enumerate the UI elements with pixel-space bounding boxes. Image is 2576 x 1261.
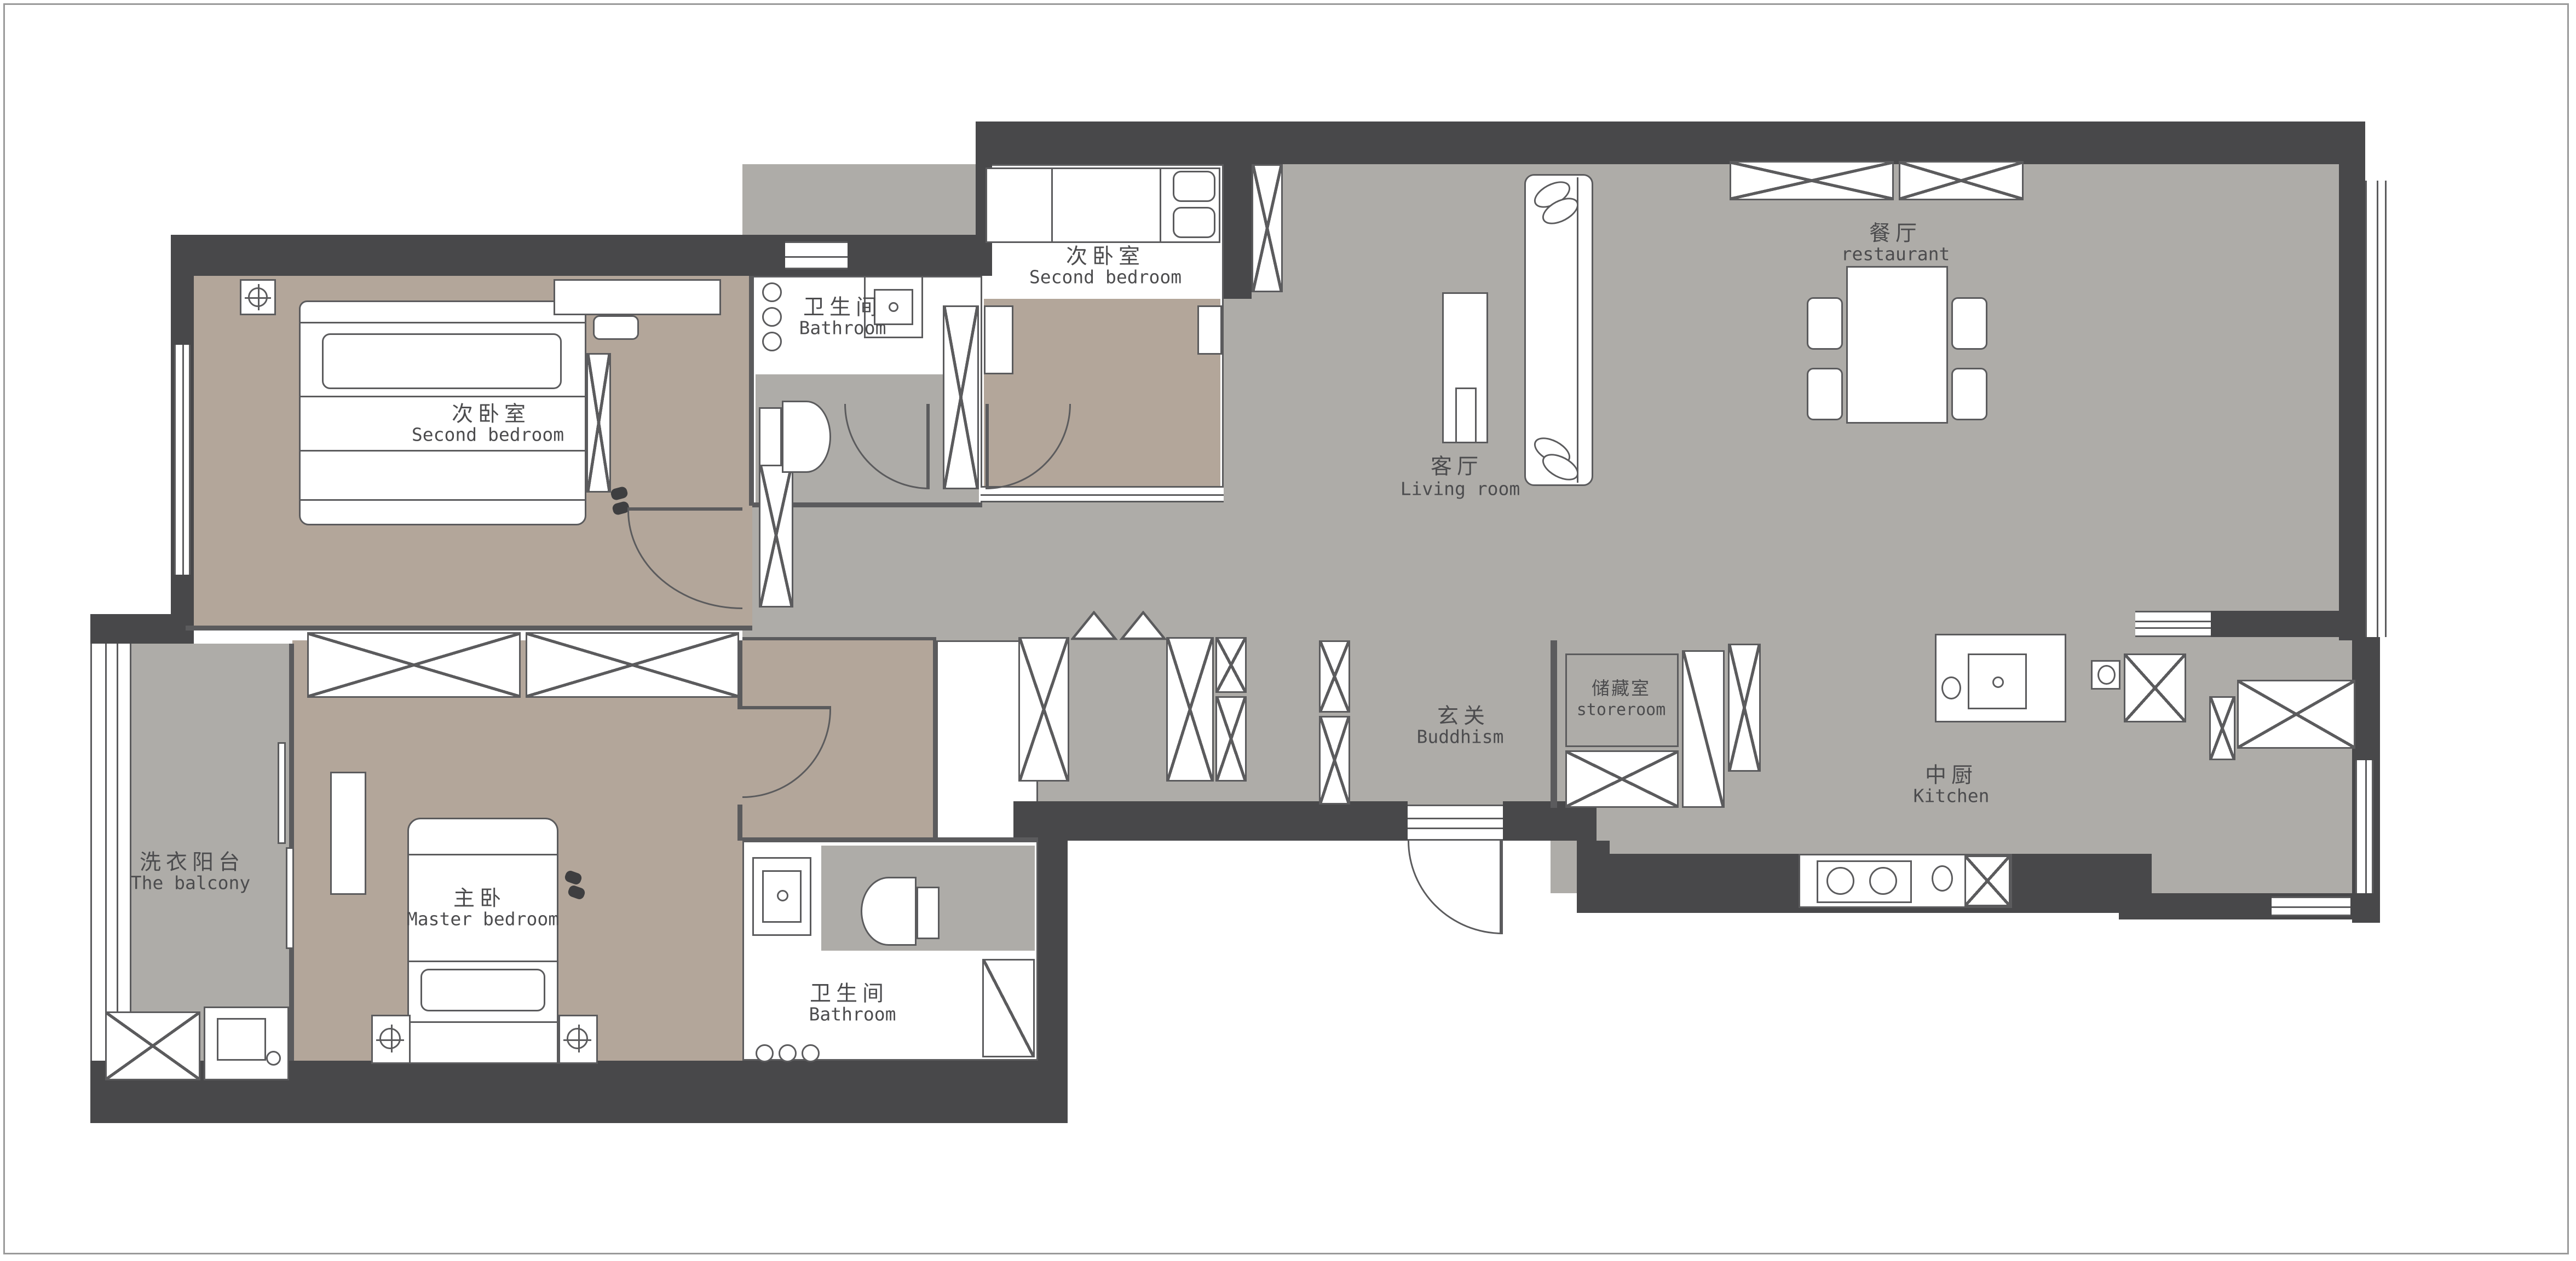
wardrobe xyxy=(526,632,739,698)
bed-headboard xyxy=(299,300,586,323)
room-label-balcony-cn: 洗衣阳台 xyxy=(140,845,245,876)
desk-chair xyxy=(593,315,639,340)
wardrobe-bathroom xyxy=(943,305,979,489)
bed-line xyxy=(301,499,585,501)
hall-wardrobe xyxy=(1018,637,1069,782)
room-label-hallway-en: Buddhism xyxy=(1417,727,1504,748)
wardrobe-corridor xyxy=(759,463,793,608)
wall-entry-south-west xyxy=(1013,801,1408,841)
dining-chair xyxy=(1807,368,1843,420)
burner-icon xyxy=(1869,867,1897,895)
room-label-master-cn: 主卧 xyxy=(453,881,506,912)
appliance-icon xyxy=(1941,676,1961,699)
shower-control-icon xyxy=(779,1044,797,1062)
room-label-bathroom-top-en: Bathroom xyxy=(799,318,886,339)
kitchen-pass-band xyxy=(2135,611,2211,637)
window-balcony-west xyxy=(90,644,131,1061)
lamp-icon xyxy=(379,1028,401,1049)
wall-bedroom-top-east xyxy=(1224,164,1252,299)
bed-line xyxy=(1051,169,1053,241)
bed-pillow xyxy=(1173,207,1215,238)
hook-icon xyxy=(762,332,782,351)
hall-cabinet xyxy=(1215,696,1247,782)
room-label-living-room-en: Living room xyxy=(1401,479,1520,500)
wall-top-right xyxy=(976,122,2349,164)
drain-icon xyxy=(266,1051,281,1066)
wall-storeroom-west xyxy=(1551,640,1557,808)
storeroom-cabinet xyxy=(1565,750,1679,808)
lamp-icon xyxy=(248,287,268,307)
bed-line xyxy=(409,961,557,963)
folding-door-icon xyxy=(1071,611,1166,640)
desk xyxy=(554,279,721,315)
nightstand xyxy=(1197,305,1222,355)
kitchen-cabinet xyxy=(1964,855,2010,906)
dresser xyxy=(330,772,366,895)
hall-wardrobe xyxy=(1166,637,1214,782)
room-label-hallway-cn: 玄关 xyxy=(1437,699,1490,730)
wall-kitchen-strip-top xyxy=(2211,611,2360,637)
shower-area xyxy=(982,959,1035,1057)
wall-corridor-vestibule xyxy=(933,640,938,841)
wall-entry-corner xyxy=(1577,841,1610,913)
fridge xyxy=(2237,680,2355,749)
floor-plan-canvas: 次卧室 Second bedroom 卫生间 Bathroom 次卧室 Seco… xyxy=(0,0,2575,1261)
faucet-icon xyxy=(1992,676,2004,688)
room-label-bathroom-bottom-en: Bathroom xyxy=(809,1004,896,1026)
shower-control-icon xyxy=(756,1044,774,1062)
wall-bedroom-left-south xyxy=(186,626,752,630)
window-bedroom-left xyxy=(174,345,191,575)
tall-cabinet xyxy=(1728,644,1761,772)
dining-chair xyxy=(1951,368,1987,420)
room-label-master-en: Master bedroom xyxy=(407,909,559,930)
lamp-icon xyxy=(567,1028,588,1049)
wall-balcony-corner xyxy=(90,614,194,644)
room-label-bathroom-bottom-cn: 卫生间 xyxy=(810,976,889,1008)
wall-top-left xyxy=(181,235,992,276)
room-label-kitchen-cn: 中厨 xyxy=(1925,758,1978,789)
room-label-kitchen-en: Kitchen xyxy=(1913,786,1989,807)
tall-cabinet xyxy=(1682,650,1725,808)
hall-cabinet xyxy=(1319,716,1350,805)
toilet-bowl xyxy=(782,401,831,473)
toilet-tank xyxy=(917,887,940,939)
bed-line xyxy=(1160,169,1162,241)
dining-chair xyxy=(1807,297,1843,350)
bed-pillow xyxy=(322,333,562,389)
room-label-storeroom-cn: 储藏室 xyxy=(1592,675,1651,701)
sofa-seat-line xyxy=(1577,177,1579,483)
bed-pillow xyxy=(420,969,545,1011)
dining-cabinet xyxy=(1899,161,2024,200)
kitchen-cabinet-column xyxy=(2209,696,2235,760)
room-label-dining-cn: 餐厅 xyxy=(1869,216,1922,247)
door-leaf xyxy=(986,404,989,489)
hook-icon xyxy=(762,282,782,302)
bed-pillow xyxy=(1173,171,1215,202)
toilet-bowl xyxy=(861,877,917,946)
room-label-second-bedroom-left-en: Second bedroom xyxy=(412,425,564,446)
room-label-second-bedroom-left-cn: 次卧室 xyxy=(452,397,531,428)
toilet-tank xyxy=(759,407,782,466)
bed-line xyxy=(301,450,585,452)
burner-icon xyxy=(1826,867,1854,895)
bed-line xyxy=(409,854,557,856)
appliance-icon xyxy=(1932,865,1953,892)
shower-control-icon xyxy=(802,1044,820,1062)
wardrobe xyxy=(307,632,521,698)
room-label-living-room-cn: 客厅 xyxy=(1431,449,1483,481)
tv-icon xyxy=(1455,387,1477,443)
door-leaf xyxy=(742,706,831,709)
wall-bathroom-west xyxy=(749,276,754,506)
dining-cabinet xyxy=(1730,161,1894,200)
entry-door-threshold xyxy=(1408,805,1503,841)
shelf-column xyxy=(586,353,611,493)
washing-machine xyxy=(105,1011,200,1080)
laundry-sink-basin xyxy=(217,1018,266,1061)
door-leaf xyxy=(926,404,930,489)
door-leaf xyxy=(627,507,742,511)
kitchen-cabinet xyxy=(2124,653,2186,722)
window-bathroom-top xyxy=(785,241,848,269)
sliding-door-panel xyxy=(278,742,286,844)
faucet-icon xyxy=(777,890,788,901)
hall-cabinet xyxy=(1215,637,1247,693)
room-label-dining-en: restaurant xyxy=(1841,244,1950,265)
window-dining-east xyxy=(2365,181,2387,637)
appliance-icon xyxy=(2097,665,2116,685)
window-kitchen-east xyxy=(2355,760,2373,893)
threshold-corridor xyxy=(742,637,936,640)
wall-bathroom-bottom-east xyxy=(1038,821,1068,1061)
faucet-icon xyxy=(889,302,898,312)
bed-line xyxy=(301,396,585,398)
bed-line xyxy=(409,1021,557,1023)
threshold-bathroom-bottom xyxy=(742,837,1038,841)
room-label-second-bedroom-top-en: Second bedroom xyxy=(1029,267,1182,288)
threshold-second-bedroom-top xyxy=(981,486,1224,502)
room-label-bathroom-top-cn: 卫生间 xyxy=(803,290,882,321)
cabinet-living-west xyxy=(1252,164,1283,292)
room-label-storeroom-en: storeroom xyxy=(1577,702,1666,720)
sliding-door-panel xyxy=(286,847,294,949)
dining-chair xyxy=(1951,297,1987,350)
hook-icon xyxy=(762,307,782,327)
wall-corridor-west-b xyxy=(737,805,742,841)
desk xyxy=(984,305,1013,374)
entry-door-leaf xyxy=(1500,841,1503,934)
room-label-second-bedroom-top-cn: 次卧室 xyxy=(1066,239,1145,270)
room-label-balcony-en: The balcony xyxy=(131,873,251,894)
window-kitchen-south xyxy=(2272,896,2350,916)
dining-table xyxy=(1846,266,1948,424)
wall-dining-east xyxy=(2339,122,2365,640)
zoom-wrapper: 次卧室 Second bedroom 卫生间 Bathroom 次卧室 Seco… xyxy=(0,0,2575,1261)
hall-cabinet xyxy=(1319,640,1350,713)
